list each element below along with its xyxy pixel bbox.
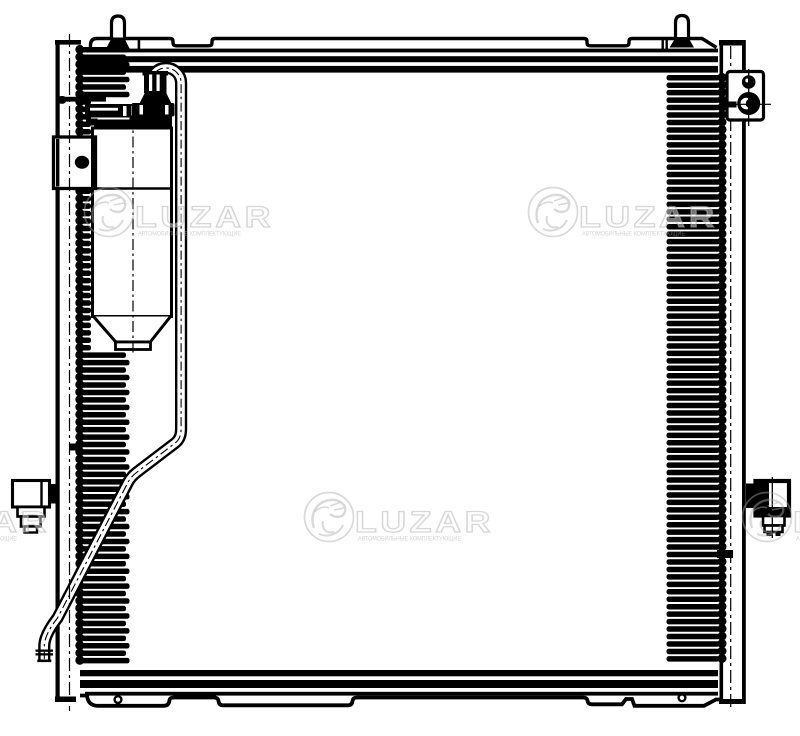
svg-text:LUZAR: LUZAR <box>793 506 800 539</box>
svg-text:АВТОМОБИЛЬНЫЕ КОМПЛЕКТУЮЩИЕ: АВТОМОБИЛЬНЫЕ КОМПЛЕКТУЮЩИЕ <box>0 536 17 543</box>
svg-text:АВТОМОБИЛЬНЫЕ КОМПЛЕКТУЮЩИЕ: АВТОМОБИЛЬНЫЕ КОМПЛЕКТУЮЩИЕ <box>796 536 800 543</box>
svg-text:АВТОМОБИЛЬНЫЕ КОМПЛЕКТУЮЩИЕ: АВТОМОБИЛЬНЫЕ КОМПЛЕКТУЮЩИЕ <box>582 231 685 238</box>
svg-text:АВТОМОБИЛЬНЫЕ КОМПЛЕКТУЮЩИЕ: АВТОМОБИЛЬНЫЕ КОМПЛЕКТУЮЩИЕ <box>358 536 461 543</box>
svg-text:LUZAR: LUZAR <box>355 506 494 539</box>
svg-text:LUZAR: LUZAR <box>0 506 50 539</box>
svg-text:LUZAR: LUZAR <box>135 201 274 234</box>
svg-text:АВТОМОБИЛЬНЫЕ КОМПЛЕКТУЮЩИЕ: АВТОМОБИЛЬНЫЕ КОМПЛЕКТУЮЩИЕ <box>138 231 241 238</box>
svg-text:LUZAR: LUZAR <box>579 201 718 234</box>
